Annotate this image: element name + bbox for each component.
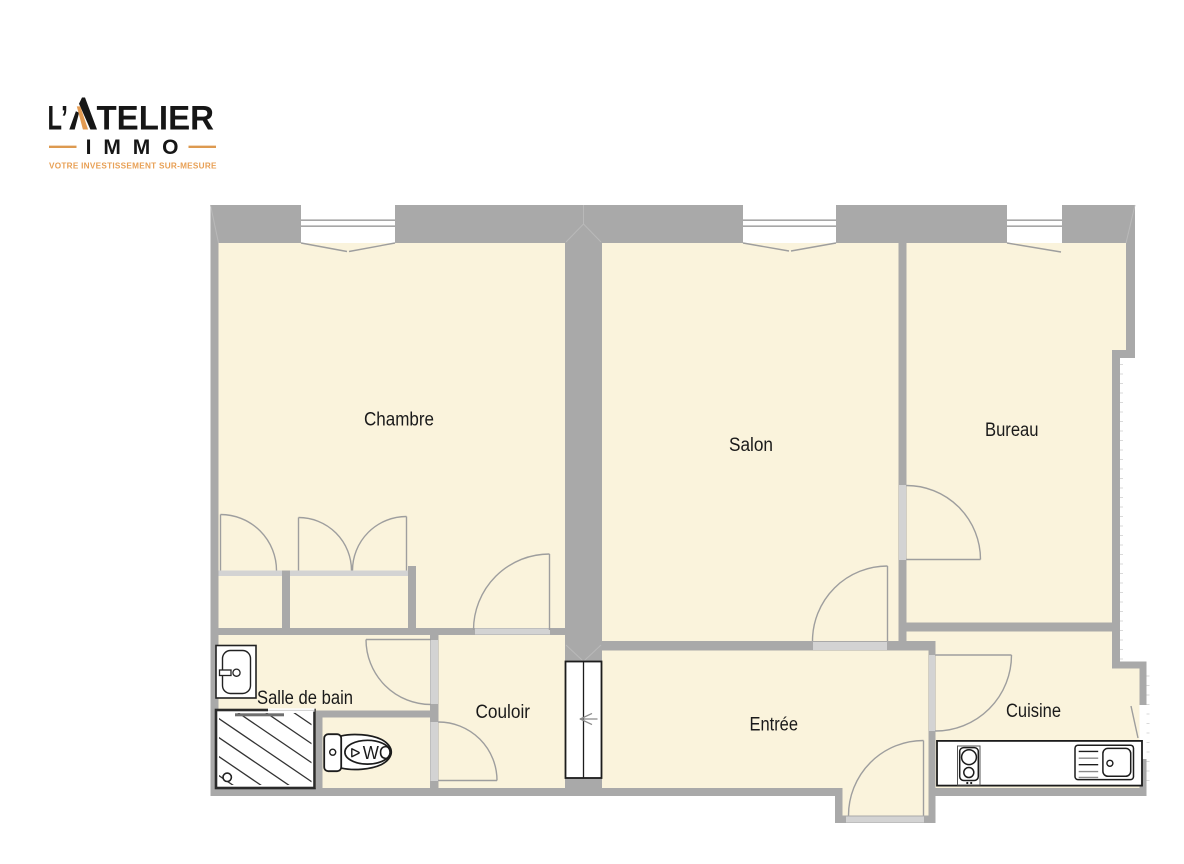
svg-text:Cuisine: Cuisine bbox=[1006, 701, 1061, 722]
svg-text:Bureau: Bureau bbox=[985, 420, 1039, 441]
svg-text:L: L bbox=[48, 100, 63, 138]
svg-text:TELIER: TELIER bbox=[97, 100, 215, 138]
svg-text:Salon: Salon bbox=[729, 435, 773, 456]
svg-text:WC: WC bbox=[363, 743, 392, 763]
svg-text:Entrée: Entrée bbox=[750, 714, 799, 735]
svg-text:IMMO: IMMO bbox=[86, 136, 191, 159]
svg-text:’: ’ bbox=[61, 100, 68, 138]
svg-text:Salle de bain: Salle de bain bbox=[257, 688, 353, 709]
svg-text:Couloir: Couloir bbox=[476, 702, 531, 723]
svg-text:VOTRE INVESTISSEMENT SUR-MESUR: VOTRE INVESTISSEMENT SUR-MESURE bbox=[49, 162, 217, 171]
svg-text:Chambre: Chambre bbox=[364, 409, 434, 430]
